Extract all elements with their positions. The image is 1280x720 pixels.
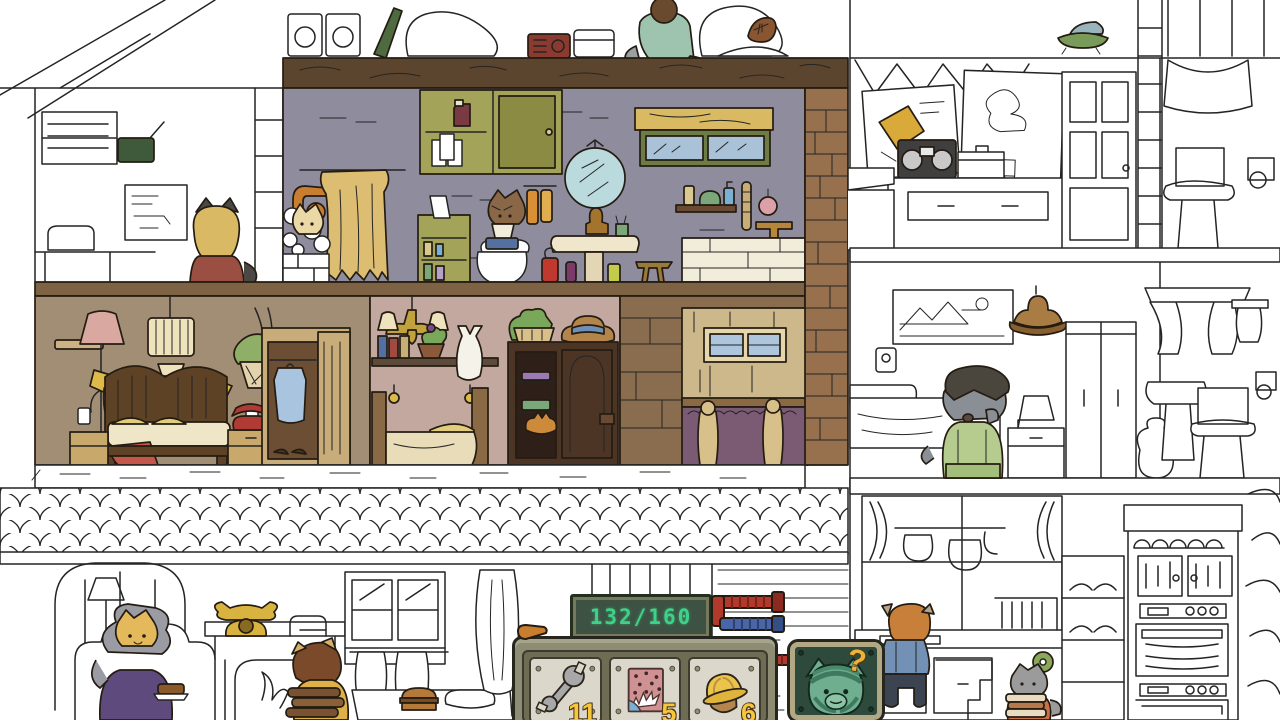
closet [262,328,350,465]
wrench-count: 11 [568,700,597,720]
hint-panel[interactable]: ? [790,642,882,720]
tool-wrench[interactable]: 11 [529,657,602,720]
bathroom-room [283,88,805,282]
left-attic-room [0,88,283,282]
brick-column [805,88,848,465]
game-stage: 132/160 11 [0,0,1280,720]
confetti-splash-count: 5 [661,700,676,720]
cat-attic-climber[interactable] [625,0,704,64]
progress-counter-value: 132/160 [590,605,693,629]
tool-confetti-splash[interactable]: 5 [609,657,682,720]
progress-counter: 132/160 [570,594,712,640]
tool-hard-hat[interactable]: 6 [688,657,761,720]
firewood-logs [286,688,344,717]
ceiling-beam [283,58,848,88]
floor-beam [35,282,805,296]
burger [400,688,438,710]
cat-firewood[interactable] [286,638,348,720]
stone-band [32,465,805,488]
pipes-icon [694,590,798,642]
cat-granny[interactable] [75,604,215,720]
bowl-stack [1006,694,1046,717]
cowboy-hat-hanging [1010,286,1067,335]
tools-toolbar: 11 5 [512,636,778,720]
tools-tray: 11 5 [522,650,768,720]
pancakes-plate [154,684,188,700]
hard-hat-count: 6 [741,700,756,720]
armoire [508,309,618,465]
plank-wall-door [620,296,808,465]
cat-seamstress[interactable] [190,198,256,288]
handle-icon [514,623,550,641]
ufo-toy [1058,22,1108,54]
shingle-roof [0,488,848,564]
